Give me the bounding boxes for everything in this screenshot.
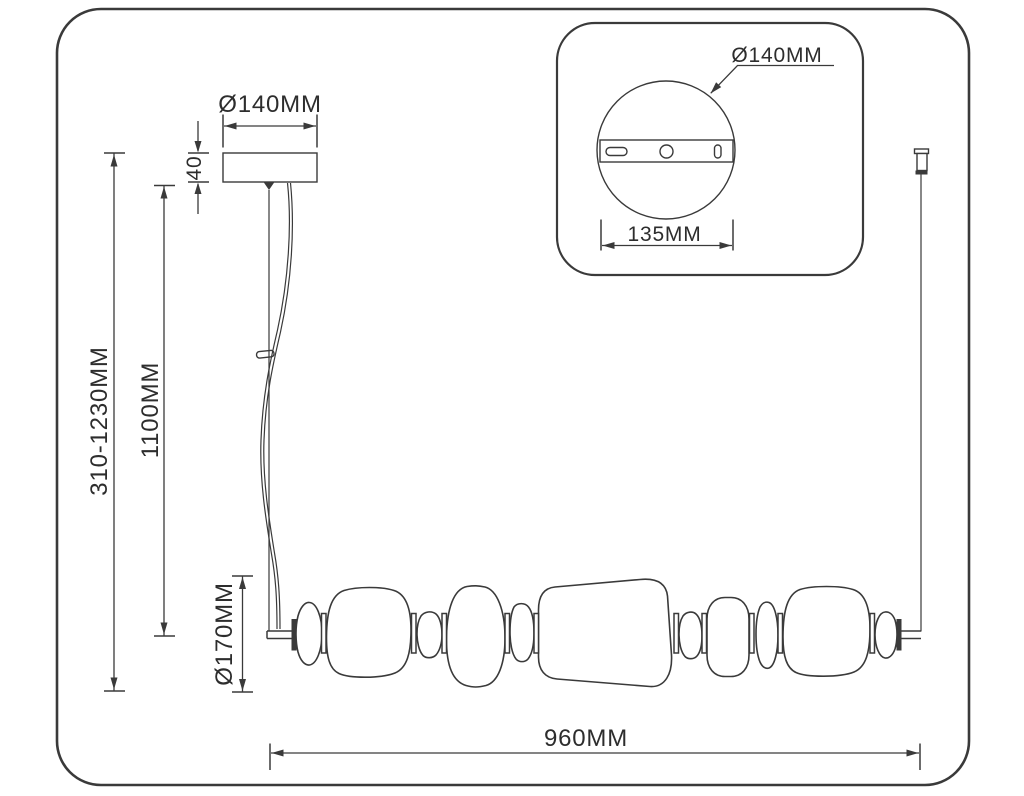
dimension-bracket-spacing: 135MM (601, 220, 733, 251)
cable-strain-relief (264, 182, 275, 190)
glass-shade (327, 588, 412, 678)
glass-shade (756, 602, 778, 668)
glass-shade (707, 598, 749, 677)
shade-connector (322, 614, 327, 654)
glass-shade (875, 612, 897, 658)
dimension-shade-diameter: Ø170MM (211, 576, 253, 692)
shade-connector (442, 614, 447, 654)
glass-shade (539, 579, 672, 686)
glass-shade (783, 587, 870, 677)
shade-connector (412, 614, 417, 654)
shade-connector (674, 614, 679, 654)
pendant-lamp-drawing: Ø140MM 40 310-1230MM 1100MM Ø170MM (0, 0, 1024, 796)
shade-connector (505, 614, 510, 654)
canopy-height-label: 40 (183, 156, 206, 181)
glass-shades (296, 579, 897, 687)
dimension-fixture-width: 960MM (270, 725, 920, 770)
shade-connector (750, 614, 755, 654)
ceiling-fitting (915, 149, 929, 175)
plate-diameter-label: Ø140MM (731, 44, 822, 67)
canopy-diameter-label: Ø140MM (218, 91, 322, 118)
shade-connector (534, 614, 539, 654)
shade-connector (778, 614, 783, 654)
shade-connector (870, 614, 875, 654)
ceiling-canopy (223, 153, 317, 190)
glass-shade (296, 602, 322, 665)
fixture-width-label: 960MM (544, 725, 628, 752)
dimension-canopy-diameter: Ø140MM (218, 91, 322, 148)
dimension-suspension-range: 310-1230MM (86, 153, 125, 691)
dimension-plate-diameter: Ø140MM (711, 44, 835, 94)
glass-shade (447, 586, 506, 687)
glass-shade (417, 612, 442, 658)
glass-shade (679, 612, 702, 659)
dimension-cable-length: 1100MM (137, 186, 175, 637)
suspension-range-label: 310-1230MM (86, 346, 113, 495)
shade-connector (702, 614, 707, 654)
inset-detail: Ø140MM 135MM (557, 23, 863, 275)
dimension-canopy-height: 40 (183, 121, 209, 214)
bracket-spacing-label: 135MM (627, 223, 701, 246)
shade-diameter-label: Ø170MM (211, 582, 238, 686)
right-suspension (915, 149, 929, 632)
glass-shade (510, 604, 534, 662)
cable-length-label: 1100MM (137, 362, 164, 458)
suspension-cable (256, 183, 292, 631)
dimension-drawing: Ø140MM 40 310-1230MM 1100MM Ø170MM (0, 0, 1024, 796)
